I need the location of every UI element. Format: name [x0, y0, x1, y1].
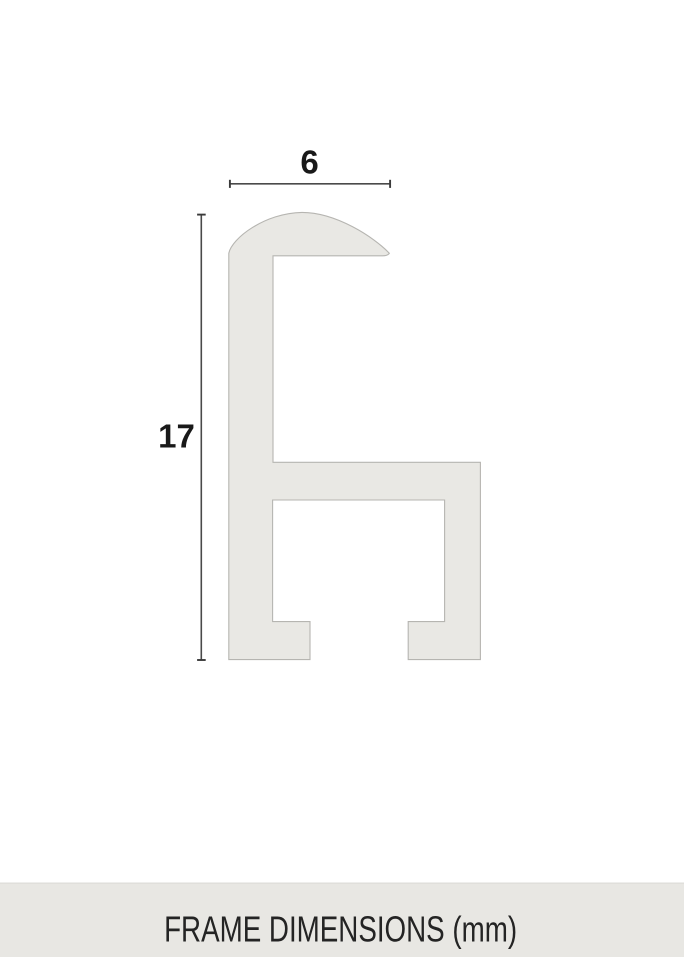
svg-text:6: 6: [300, 143, 318, 180]
svg-text:17: 17: [158, 418, 195, 455]
svg-text:FRAME DIMENSIONS (mm): FRAME DIMENSIONS (mm): [164, 909, 517, 950]
